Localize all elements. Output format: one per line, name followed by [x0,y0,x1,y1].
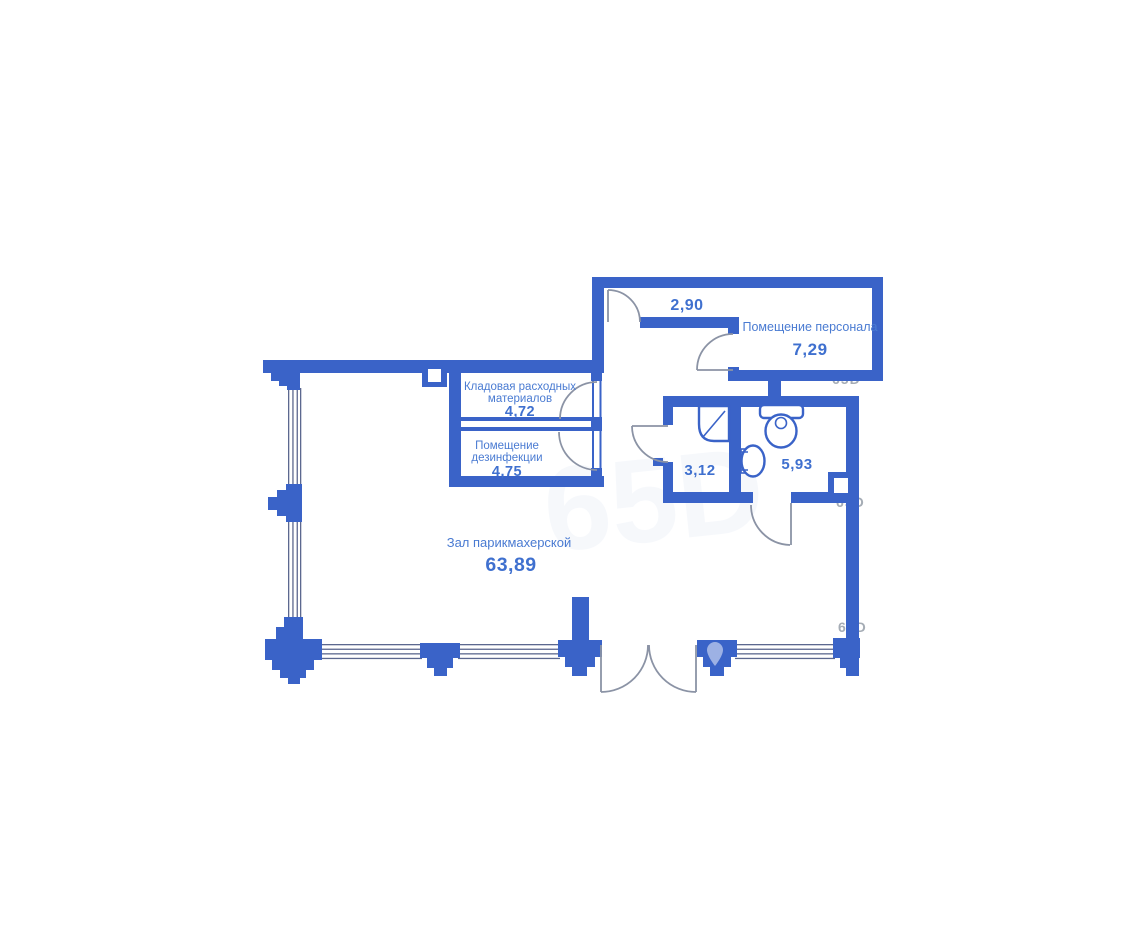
door-jamb [592,381,594,417]
column [558,597,602,676]
wall-segment [591,373,602,381]
window-line [288,388,289,486]
entrance-double-door [601,645,696,692]
column [268,484,302,522]
door-vestibule [608,290,640,322]
floor-plan-drawing: 65D 65D 65D 65D [0,0,1125,941]
window-line [458,653,560,654]
pilaster-core [834,478,848,493]
room-name: Помещение персонала [742,320,877,334]
room-name: Помещение [475,440,539,452]
room-area: 5,93 [781,456,812,473]
wall-segment [663,492,753,503]
wall-segment [735,370,883,381]
door-staff-room [697,334,733,370]
room-name: Кладовая расходных [464,381,576,393]
window-line [292,388,293,486]
wall-segment [768,381,781,396]
room-area: 3,12 [684,462,715,479]
window-line [288,521,289,619]
wall-segment [595,277,883,288]
room-area: 63,89 [485,554,536,576]
floor-plan-page: 65D 65D 65D 65D [0,0,1125,941]
wall-segment [663,462,673,497]
wall-segment [592,277,604,362]
window-line [318,658,422,659]
window-line [458,658,560,659]
window-line [735,658,835,659]
window-line [297,388,298,486]
column [420,643,460,676]
room-name: Зал парикмахерской [447,535,572,550]
window-line [458,649,560,650]
column [265,617,322,684]
wall-segment [846,396,859,648]
wall-segment [728,317,739,334]
window-line [458,644,560,645]
room-name: дезинфекции [471,452,542,464]
shower-cabin-icon [699,406,729,441]
wall-segment [729,407,741,497]
wall-segment [449,360,461,487]
window-line [292,521,293,619]
wall-segment [663,407,673,425]
window-line [318,649,422,650]
wall-segment [449,427,594,431]
column [833,638,860,676]
wall-segment [640,317,739,328]
window-line [735,649,835,650]
room-area: 7,29 [792,340,827,359]
window-line [300,521,301,619]
pilaster-core [428,369,441,382]
door-jamb [600,381,602,417]
toilet-icon [760,405,803,448]
column [263,360,300,390]
window-line [300,388,301,486]
wall-segment [449,476,604,487]
sink-icon [741,446,765,477]
window-line [735,653,835,654]
window-line [735,644,835,645]
room-area: 4,75 [492,464,522,480]
window-line [297,521,298,619]
room-area: 4,72 [505,404,535,420]
window-line [318,644,422,645]
room-area: 2,90 [670,297,703,314]
door-jamb [600,431,602,468]
door-jamb [592,431,594,468]
window-line [318,653,422,654]
